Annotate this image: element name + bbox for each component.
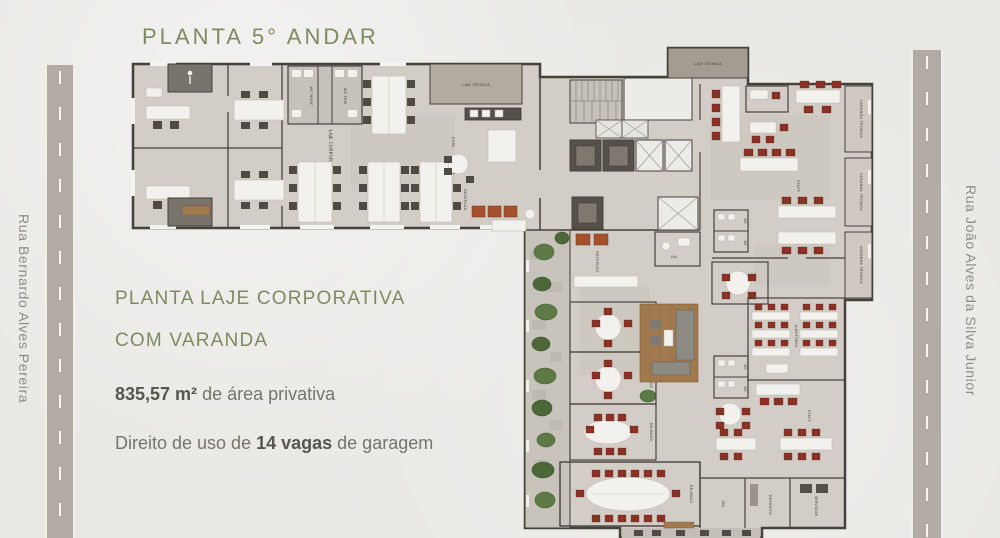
label-wc-masc: WC MASC xyxy=(309,86,313,106)
label-wc-fem: WC FEM xyxy=(343,88,347,104)
label-auditorio: AUDITÓRIO xyxy=(794,325,799,348)
floor-plan: VARANDA TÉCNICA VARANDA TÉCNICA VARANDA … xyxy=(0,0,1000,538)
label-lav: LAV. xyxy=(671,255,678,259)
lounge xyxy=(640,304,698,382)
label-laje-tecnica-2: LAJE TÉCNICA xyxy=(694,61,722,66)
label-wc-1: WC xyxy=(743,218,747,224)
label-wc-3: WC xyxy=(743,364,747,370)
label-reuniao-4: REUNIÃO xyxy=(689,485,694,503)
varanda-tecnica: VARANDA TÉCNICA VARANDA TÉCNICA VARANDA … xyxy=(845,86,872,298)
label-servidor: SERVIDOR xyxy=(814,496,818,517)
label-laje-tecnica-1: LAJE TÉCNICA xyxy=(462,82,490,87)
label-wc-4: WC xyxy=(743,386,747,392)
label-deposito: DEPÓSITO xyxy=(768,495,773,515)
label-wc-2: WC xyxy=(743,240,747,246)
label-varanda-tecnica-3: VARANDA TÉCNICA xyxy=(859,246,864,284)
label-staff-2: STAFF xyxy=(807,410,811,422)
label-copa: COPA xyxy=(451,137,455,148)
poster: Rua Bernardo Alves Pereira Rua João Alve… xyxy=(0,0,1000,538)
label-varanda-tecnica-2: VARANDA TÉCNICA xyxy=(859,173,864,211)
wc-block: WC MASC WC FEM xyxy=(288,66,362,124)
label-recepcao-2: RECEPÇÃO xyxy=(595,251,600,272)
label-recepcao-1: RECEPÇÃO xyxy=(463,189,468,210)
label-dml: DML xyxy=(721,501,725,508)
label-reuniao-3: REUNIÃO xyxy=(649,423,654,441)
label-varanda-tecnica-1: VARANDA TÉCNICA xyxy=(859,100,864,138)
label-staff-1: STAFF xyxy=(796,180,800,192)
